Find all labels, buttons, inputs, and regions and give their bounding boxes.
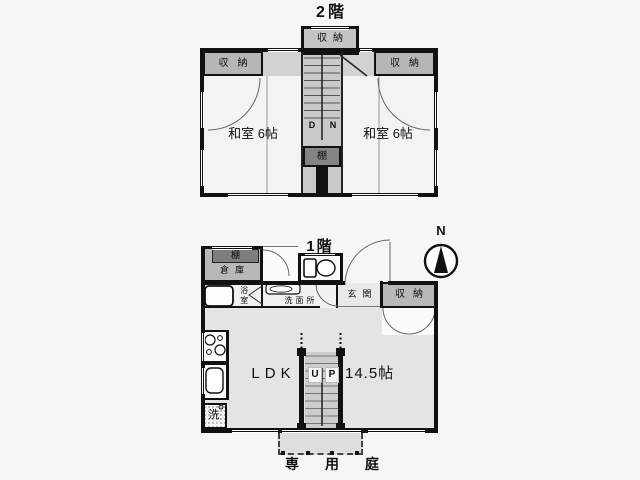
floor2-left-closet-label: 収納: [203, 58, 263, 69]
floor2-room-left-label: 和室 6帖: [205, 127, 301, 141]
stairs-up-p: P: [325, 367, 339, 383]
floor2-window-top-right: [360, 49, 372, 52]
floor1-window-bottom-right: [368, 430, 425, 433]
stairs-up-u: U: [308, 367, 322, 383]
floor1-bath: [201, 283, 263, 308]
floor2-window-top-left: [268, 49, 298, 52]
room-right-size: 6帖: [393, 126, 413, 141]
floor1-bath-bottom-wall: [201, 306, 263, 308]
floor1-kitchen-counter: [227, 330, 229, 400]
floor1-stair-post-tl: [297, 348, 306, 356]
floor2-corridor-left: [263, 51, 303, 76]
floor2-title: 2階: [270, 4, 390, 22]
floor2-window-bottom-1: [228, 194, 288, 197]
floor1-stair-rail-left: [299, 350, 304, 430]
floor1-wall-top-left: [201, 281, 345, 285]
floor1-storage-label: 倉庫: [201, 266, 263, 276]
floor2-shelf-label: 棚: [303, 151, 341, 162]
ldk-size-label: 14.5帖: [345, 366, 411, 383]
floor1-window-left-1: [202, 333, 205, 361]
floor2-shaft-wall-right: [341, 51, 343, 197]
floor2-window-right-1: [435, 92, 438, 128]
floorplan-canvas: 2階 収納 収納 収納 和室 6帖 和室 6帖 D N 棚 1階 N 棚 倉庫 …: [0, 0, 640, 480]
stairs-down-n: N: [326, 121, 340, 131]
floor1-stairs: [305, 352, 339, 428]
stairs-down-d: D: [305, 121, 319, 131]
room-left-name: 和室: [228, 126, 254, 141]
ldk-label: LDK: [240, 366, 302, 383]
floor1-stair-rail-right: [338, 350, 343, 430]
compass-label: N: [427, 224, 455, 238]
floor1-closet-label: 収納: [381, 289, 437, 300]
floor1-entrance-label: 玄関: [338, 290, 381, 300]
room-right-name: 和室: [363, 126, 389, 141]
garden-label: 専用庭: [248, 457, 416, 472]
floor2-right-closet-label: 収納: [374, 58, 435, 69]
floor1-terrace: [278, 433, 363, 455]
floor1-window-left-2: [202, 368, 205, 394]
floor1-stove: [202, 330, 228, 363]
washer-label: 洗: [201, 409, 227, 421]
floor2-window-left-1: [201, 92, 204, 128]
floor1-genkan-step: [338, 306, 382, 307]
room-left-size: 6帖: [258, 126, 278, 141]
floor2-wall-top: [200, 48, 438, 52]
floor2-window-bottom-2: [352, 194, 418, 197]
compass-icon: [425, 245, 457, 277]
floor2-window-left-2: [201, 150, 204, 186]
floor2-shaft-wall-left: [301, 51, 303, 197]
floor1-sliding-door-terrace: [282, 430, 361, 433]
floor2-top-closet-label: 収納: [301, 33, 359, 44]
floor1-title: 1階: [280, 239, 360, 256]
floor1-closet-doors-area: [382, 308, 435, 335]
floor1-toilet-room: [298, 253, 343, 283]
floor1-wall-top-right: [388, 281, 438, 285]
floor1-washroom-bottom-wall: [263, 306, 320, 308]
floor1-stair-post-tr: [336, 348, 345, 356]
floor1-storage-shelf-label: 棚: [212, 251, 259, 261]
floor2-window-topcloset: [311, 27, 349, 30]
floor1-washroom-label: 洗面所: [263, 297, 336, 306]
floor2-room-right-label: 和室 6帖: [343, 127, 433, 141]
floor1-bath-label: 浴室: [239, 286, 248, 306]
floor1-window-bottom-left: [232, 430, 278, 433]
floor1-kitchen-sink: [202, 363, 228, 400]
floor1-wall-right: [434, 283, 438, 433]
floor2-window-right-2: [435, 150, 438, 186]
